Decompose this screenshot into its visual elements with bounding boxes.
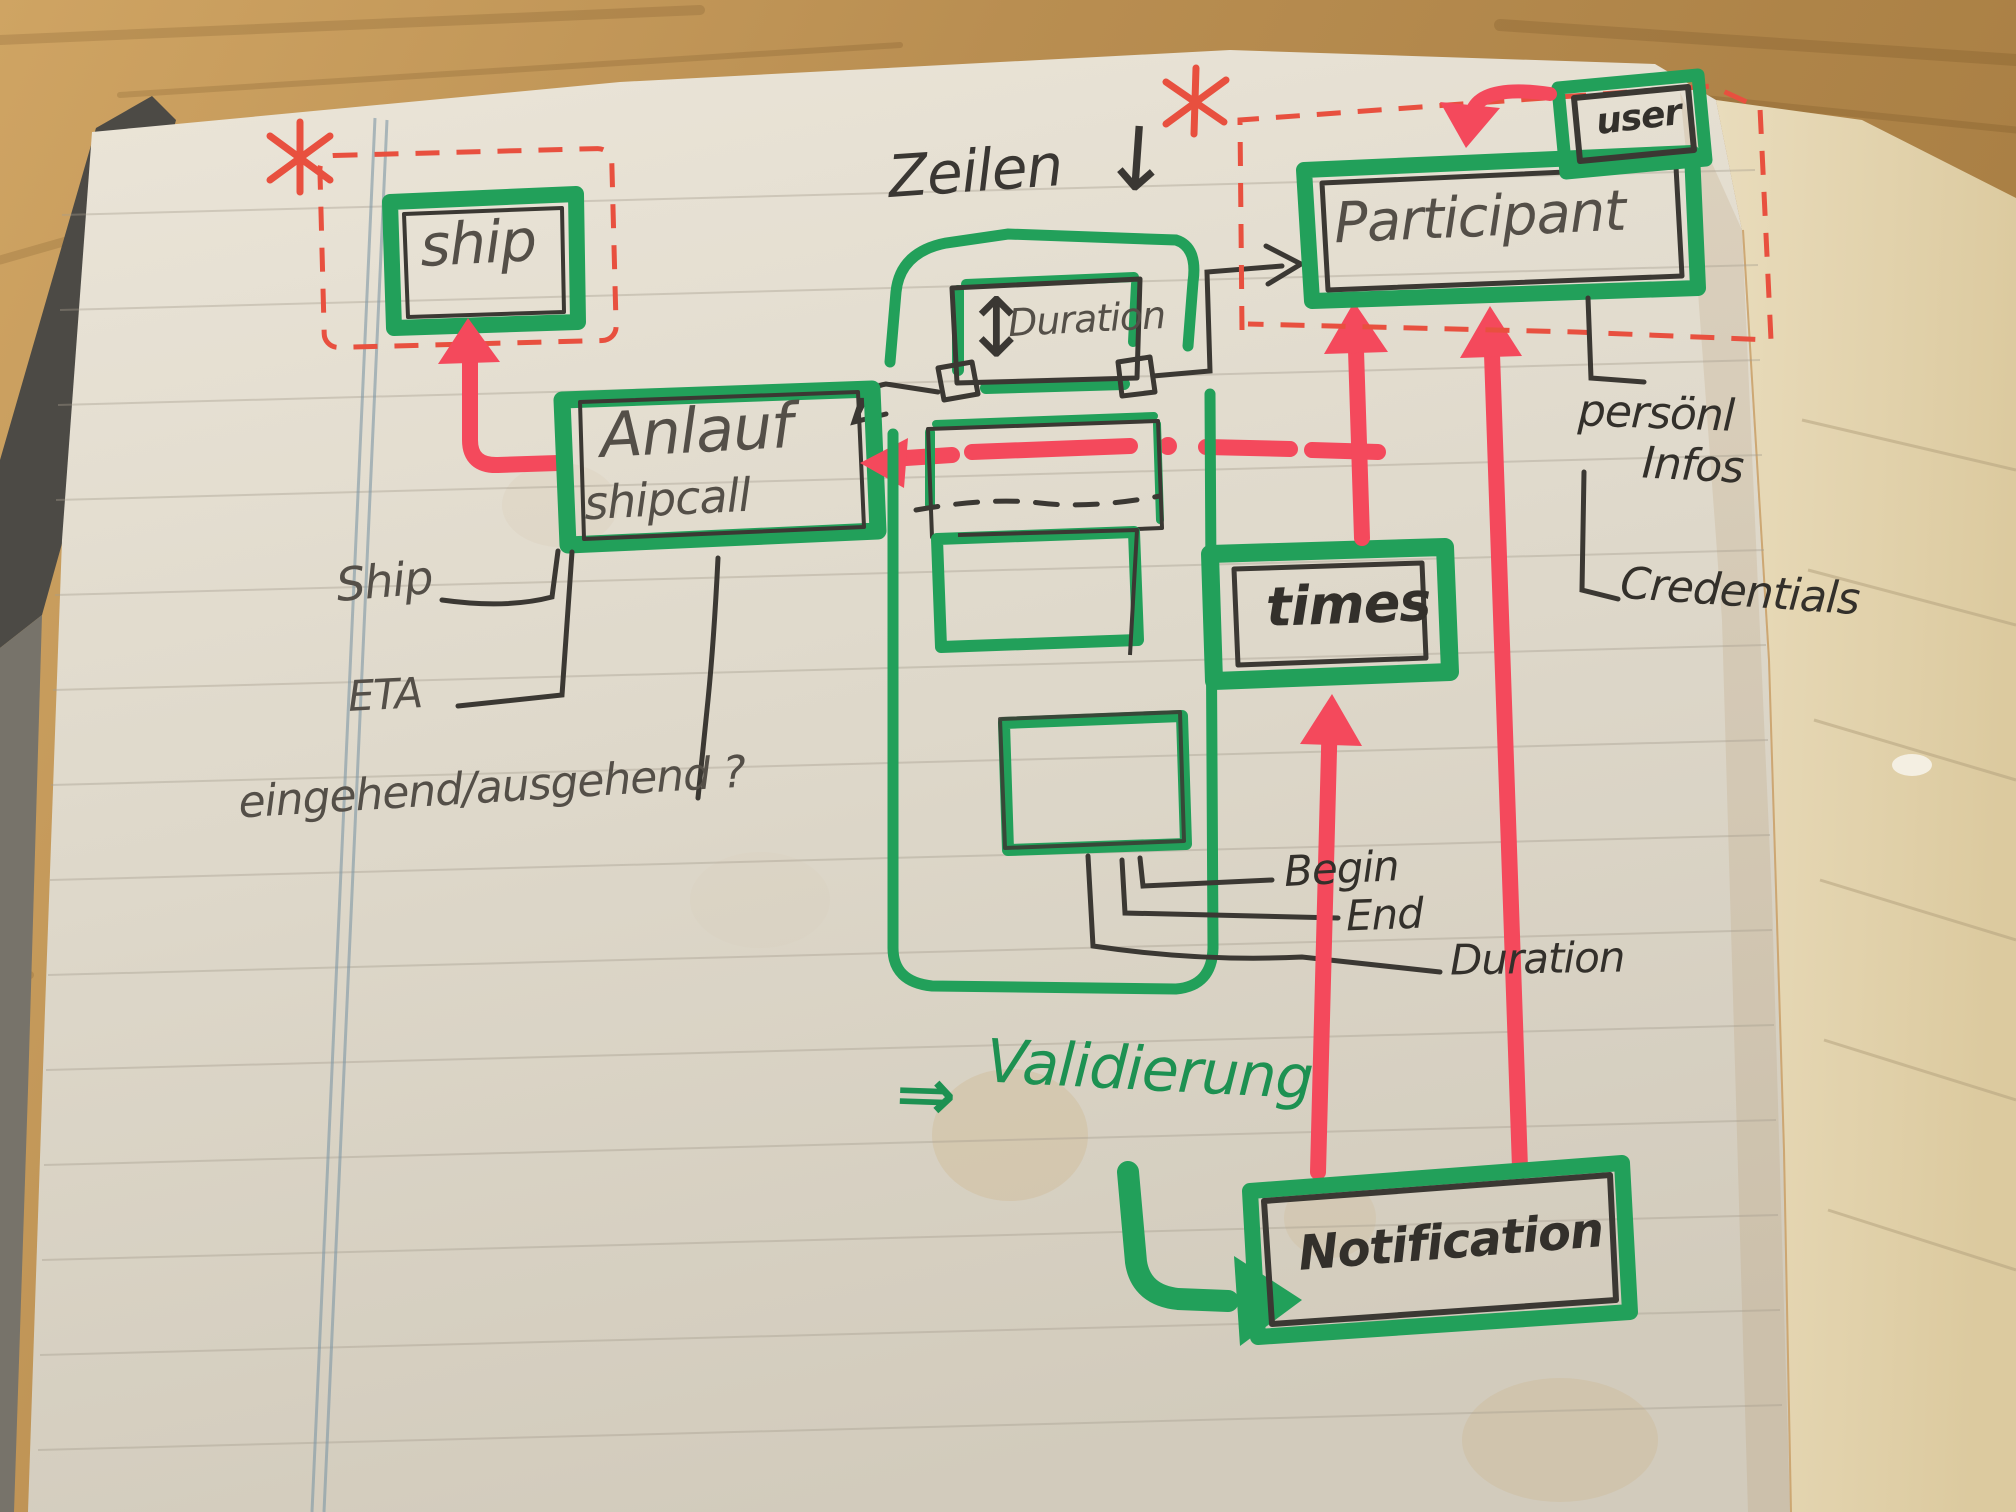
ship-box-label: ship [419,211,538,275]
validierung-arrow-icon: ⇒ [895,1057,957,1131]
user-label: user [1594,95,1683,141]
times-label: times [1265,575,1431,635]
eta-attribute-label: ETA [347,672,423,718]
begin-attribute-label: Begin [1283,845,1400,893]
zeilen-down-arrow-icon: ↓ [1097,114,1176,207]
diagram-drawing [0,0,2016,1512]
zeilen-label: Zeilen [886,136,1064,206]
ship-attribute-label: Ship [334,554,434,608]
notebook-photo: Zeilen ↓ ship Anlauf shipcall ↕ Duration… [0,0,2016,1512]
shipcall-label: shipcall [583,472,751,527]
end-attribute-label: End [1345,893,1423,938]
validierung-label: Validierung [985,1031,1314,1108]
personal-infos-label-line2: Infos [1641,441,1744,490]
duration-attribute-label: Duration [1450,936,1625,981]
duration-box-label: Duration [1007,296,1166,342]
anlauf-label: Anlauf [599,395,794,467]
participant-label: Participant [1333,184,1626,253]
personal-infos-label-line1: persönl [1577,389,1734,438]
